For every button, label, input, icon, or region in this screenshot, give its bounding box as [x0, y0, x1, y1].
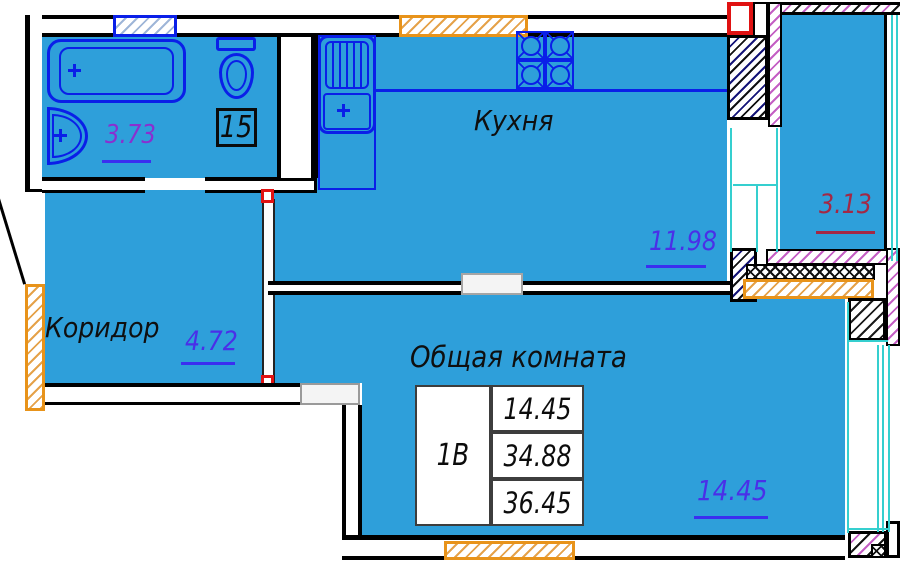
toilet-tank-icon [216, 37, 256, 51]
stove-burner-icon [516, 60, 545, 89]
floor-plan: 15 3.73 Кухня 11.98 3.13 Коридор 4.72 Об… [0, 0, 900, 562]
entrance-door-frame [25, 284, 45, 411]
total-area-value: 36.45 [503, 486, 571, 520]
drainboard-icon [325, 41, 369, 89]
corridor-area-label: 4.72 [185, 326, 238, 357]
wall-left [25, 15, 42, 192]
window-bathroom [113, 15, 177, 37]
window-living-bottom [444, 541, 575, 560]
table-cell-total-area: 36.45 [491, 479, 584, 526]
living-room-area-label: 14.45 [697, 474, 768, 507]
living-room-area-underline [694, 516, 768, 519]
glazing-line [891, 15, 893, 261]
faucet-icon [54, 129, 67, 142]
wall-kitchen-balcony [727, 35, 768, 120]
table-cell-type: 1В [415, 385, 491, 526]
unit-number-box: 15 [216, 108, 257, 147]
balcony-floor-strip [766, 249, 900, 265]
unit-number: 15 [220, 110, 252, 145]
corridor-area-underline [181, 362, 235, 365]
wall-bath-bottom-left [42, 177, 145, 193]
glazing-line [882, 345, 884, 532]
glazing-line [847, 302, 849, 533]
wall-strip-magenta [768, 2, 782, 127]
glazing-line [877, 345, 879, 532]
window-balcony-living [743, 279, 874, 299]
wall-block-right [848, 298, 886, 341]
door-opening-living [300, 383, 360, 405]
balcony-area-label: 3.13 [819, 189, 872, 220]
kitchen-area-underline [646, 265, 706, 268]
living-room-label: Общая комната [410, 340, 627, 374]
balcony-door-frame [756, 186, 758, 252]
bathroom-area-label: 3.73 [105, 120, 156, 150]
door-jamb-marker-top [261, 189, 274, 203]
window-kitchen [399, 15, 528, 37]
stove-burner-icon [545, 60, 574, 89]
corridor-label: Коридор [45, 311, 160, 344]
insulation-band [746, 264, 875, 280]
wall-strip-right [886, 248, 900, 346]
glazing-line [896, 15, 898, 261]
faucet-icon [68, 64, 81, 77]
door-opening-kitchen [461, 273, 523, 295]
room-fill-hall [45, 190, 727, 283]
table-cell-area: 34.88 [491, 432, 584, 479]
area-value: 34.88 [503, 439, 571, 473]
kitchen-area-label: 11.98 [649, 226, 717, 257]
balcony-area-underline [816, 231, 875, 234]
balcony-door-frame [730, 128, 732, 252]
apartment-type: 1В [437, 438, 470, 473]
bathroom-area-underline [102, 160, 151, 163]
wall-bath-right [277, 37, 318, 178]
balcony-door-frame [776, 128, 778, 252]
living-area-value: 14.45 [503, 392, 571, 426]
stove-burner-icon [545, 31, 574, 60]
faucet-icon [337, 104, 350, 117]
wall-balcony-top [782, 2, 900, 15]
window-sill-line [847, 340, 888, 342]
window-sill-line [847, 528, 888, 530]
wall-bottom [342, 535, 845, 560]
vent-shaft [727, 2, 753, 35]
corner-crosshatch [871, 544, 886, 558]
entrance-door-swing-line [0, 192, 26, 285]
room-fill-balcony [780, 13, 887, 262]
glazing-line [888, 345, 890, 532]
counter-edge-line [375, 89, 727, 92]
kitchen-label: Кухня [474, 104, 553, 137]
table-cell-living-area: 14.45 [491, 385, 584, 432]
stove-burner-icon [516, 31, 545, 60]
